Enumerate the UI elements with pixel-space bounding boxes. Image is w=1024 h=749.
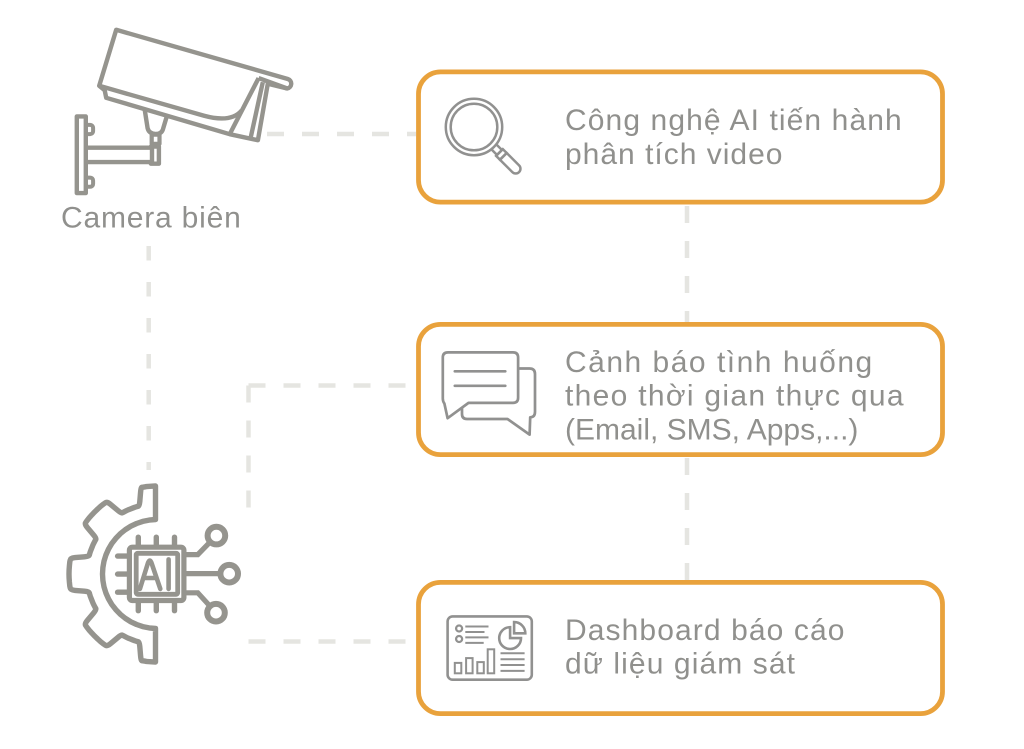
svg-text:(Email, SMS, Apps,...): (Email, SMS, Apps,...) (565, 413, 858, 446)
svg-text:theo thời gian thực qua: theo thời gian thực qua (565, 380, 905, 413)
svg-text:phân tích video: phân tích video (565, 138, 783, 171)
svg-text:Cảnh báo tình huống: Cảnh báo tình huống (565, 346, 874, 379)
svg-text:dữ liệu giám sát: dữ liệu giám sát (565, 647, 796, 680)
svg-text:Công nghệ AI tiến hành: Công nghệ AI tiến hành (565, 104, 903, 137)
svg-text:Camera biên: Camera biên (61, 202, 242, 235)
svg-text:Dashboard báo cáo: Dashboard báo cáo (565, 614, 846, 647)
